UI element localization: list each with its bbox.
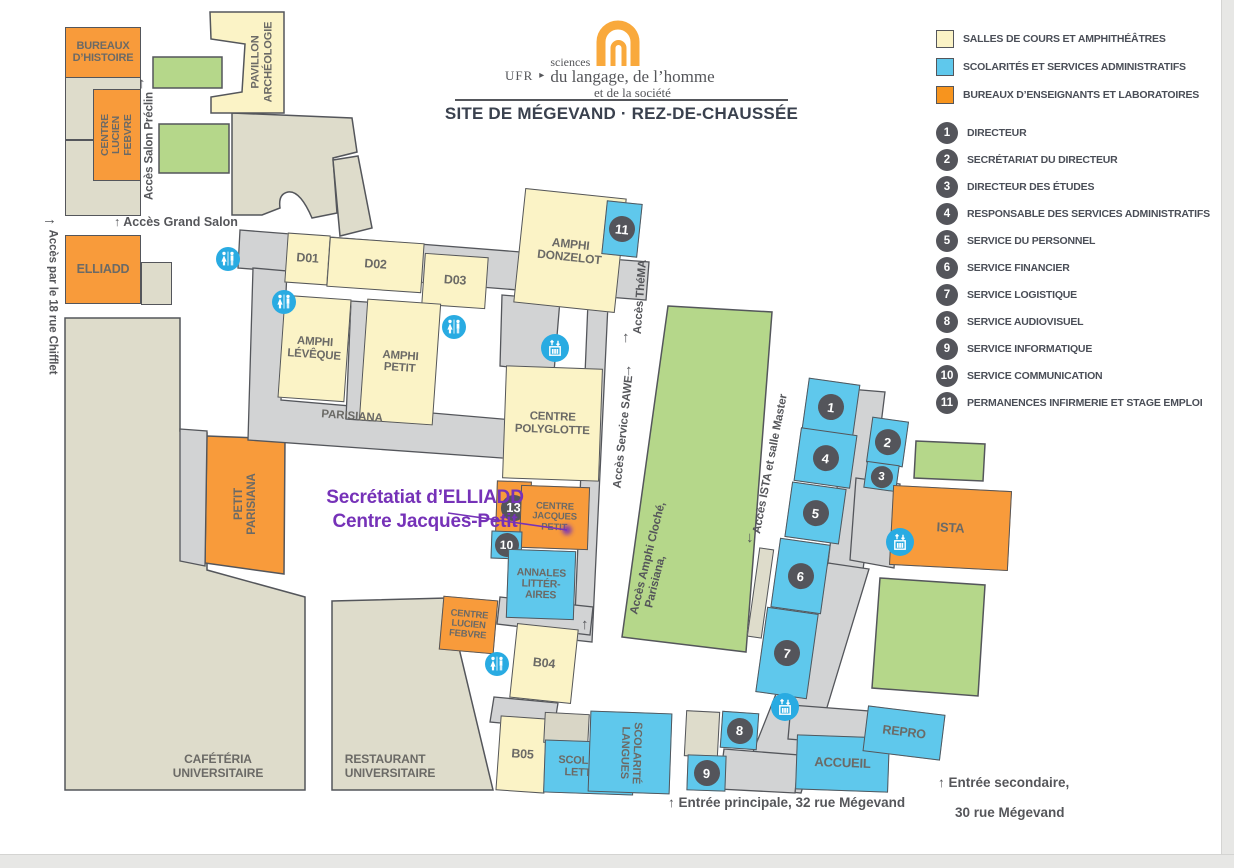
wc-icon [442,315,466,339]
directory-item-3: 3DIRECTEUR DES ÉTUDES [936,176,1094,198]
logo-line3: et de la société [550,86,714,100]
directory-item-4: 4RESPONSABLE DES SERVICES ADMINISTRATIFS [936,203,1210,225]
directory-label: SERVICE AUDIOVISUEL [967,316,1083,328]
map-badge-9: 9 [693,760,720,787]
room-secretariat-directeur: 2 [866,417,909,468]
arrow-up-icon: ↑ [622,330,630,345]
directory-label: DIRECTEUR [967,127,1026,139]
ufr-label: UFR [505,68,533,84]
ufr-arrow-icon: ▸ [539,70,544,81]
room-b04: B04 [509,623,579,704]
directory-label: DIRECTEUR DES ÉTUDES [967,181,1094,193]
room-responsable-services: 4 [794,427,858,488]
map-badge-5: 5 [801,498,830,527]
room-service-personnel: 5 [784,481,846,544]
room-service-financier: 6 [770,538,830,614]
vertical-scrollbar[interactable] [1221,0,1234,867]
building-cafeteria-label: CAFÉTÉRIA UNIVERSITAIRE [173,753,264,781]
directory-badge: 10 [936,365,958,387]
directory-item-5: 5SERVICE DU PERSONNEL [936,230,1095,252]
ufr-logo-text: UFR ▸ sciences du langage, de l’homme et… [505,56,785,100]
map-badge-4: 4 [811,443,840,472]
arrow-right-icon: → [42,212,57,227]
header-divider [455,99,788,101]
directory-item-10: 10SERVICE COMMUNICATION [936,365,1102,387]
building-entry-annex [684,710,720,758]
directory-badge: 6 [936,257,958,279]
room-d02: D02 [326,237,424,294]
legend-label: SCOLARITÉS ET SERVICES ADMINISTRATIFS [963,61,1186,73]
legend-swatch-orange [936,86,954,104]
map-badge-6: 6 [786,561,815,590]
room-centre-lucien-febvre-1: CENTRE LUCIEN FEBVRE [93,89,141,181]
room-service-informatique: 9 [686,754,726,791]
directory-badge: 11 [936,392,958,414]
room-amphi-petit: AMPHI PETIT [359,299,441,426]
room-directeur: 1 [802,378,861,437]
room-pavillon-archeologie-label: PAVILLON ARCHÉOLOGIE [249,22,274,103]
directory-badge: 9 [936,338,958,360]
room-d03: D03 [421,253,488,309]
directory-badge: 8 [936,311,958,333]
room-service-audiovisuel: 8 [720,711,759,750]
legend-item-bureaux: BUREAUX D’ENSEIGNANTS ET LABORATOIRES [936,84,1199,106]
wc-icon [485,652,509,676]
annotation-leader-line [440,500,580,542]
entrance-principale-label: ↑ Entrée principale, 32 rue Mégevand [668,795,905,810]
legend-item-cours: SALLES DE COURS ET AMPHITHÉÂTRES [936,28,1166,50]
elevator-icon [886,528,914,556]
legend-label: SALLES DE COURS ET AMPHITHÉÂTRES [963,33,1166,45]
directory-item-2: 2SECRÉTARIAT DU DIRECTEUR [936,149,1118,171]
directory-label: SECRÉTARIAT DU DIRECTEUR [967,154,1118,166]
directory-item-9: 9SERVICE INFORMATIQUE [936,338,1092,360]
room-d01: D01 [284,233,330,286]
room-centre-polyglotte: CENTRE POLYGLOTTE [502,365,603,481]
elevator-icon [771,693,799,721]
arrow-up-icon: ↑ [138,76,146,91]
map-badge-3: 3 [869,464,894,489]
legend-swatch-cream [936,30,954,48]
green-area-right-mid [872,578,985,696]
page-title: SITE DE MÉGEVAND · REZ-DE-CHAUSSÉE [440,104,803,124]
legend-swatch-blue [936,58,954,76]
room-infirmerie: 11 [601,200,642,257]
directory-label: SERVICE DU PERSONNEL [967,235,1095,247]
access-salon-preclin-label: Accès Salon Préclin [143,92,156,200]
directory-item-6: 6SERVICE FINANCIER [936,257,1070,279]
room-elliadd: ELLIADD [65,235,141,304]
room-bureaux-histoire: BUREAUX D’HISTOIRE [65,27,141,78]
directory-item-7: 7SERVICE LOGISTIQUE [936,284,1077,306]
directory-label: SERVICE COMMUNICATION [967,370,1102,382]
map-badge-7: 7 [772,638,801,667]
room-scolarite-langues: SCOLARITÉ LANGUES [588,711,673,795]
building-divider [65,139,94,141]
arrow-up-icon: ↑ [581,617,589,632]
directory-label: PERMANENCES INFIRMERIE ET STAGE EMPLOI [967,397,1202,409]
green-area-top-a [153,57,222,88]
directory-label: SERVICE FINANCIER [967,262,1070,274]
horizontal-scrollbar[interactable] [0,854,1234,868]
wc-icon [216,247,240,271]
wc-icon [272,290,296,314]
map-badge-11: 11 [608,215,637,244]
corridor-petit-parisiana [180,429,207,566]
room-b05: B05 [495,715,549,793]
directory-item-8: 8SERVICE AUDIOVISUEL [936,311,1083,333]
map-badge-2: 2 [873,427,902,456]
green-area-top-b [159,124,229,173]
building-restaurant-label: RESTAURANT UNIVERSITAIRE [345,753,436,781]
green-area-right-top [914,441,985,481]
directory-badge: 4 [936,203,958,225]
map-badge-1: 1 [816,392,845,421]
directory-label: RESPONSABLE DES SERVICES ADMINISTRATIFS [967,208,1210,220]
map-badge-8: 8 [726,717,754,745]
directory-badge: 1 [936,122,958,144]
logo-line2: du langage, de l’homme [550,68,714,86]
directory-badge: 2 [936,149,958,171]
directory-item-11: 11PERMANENCES INFIRMERIE ET STAGE EMPLOI [936,392,1202,414]
building-elliadd-annex [141,262,172,305]
access-chifflet-label: Accès par le 18 rue Chifflet [45,230,58,375]
directory-item-1: 1DIRECTEUR [936,122,1026,144]
room-centre-lucien-febvre-2: CENTRE LUCIEN FEBVRE [439,596,498,655]
directory-label: SERVICE LOGISTIQUE [967,289,1077,301]
directory-label: SERVICE INFORMATIQUE [967,343,1092,355]
directory-badge: 5 [936,230,958,252]
elevator-icon [541,334,569,362]
access-grand-salon-label: ↑ Accès Grand Salon [114,215,238,229]
corridor-accueil-bottom [719,749,799,793]
legend-label: BUREAUX D’ENSEIGNANTS ET LABORATOIRES [963,89,1199,101]
room-repro: REPRO [862,705,945,760]
directory-badge: 7 [936,284,958,306]
room-petit-parisiana-label: PETIT PARISIANA [233,473,259,535]
legend-item-scolarites: SCOLARITÉS ET SERVICES ADMINISTRATIFS [936,56,1186,78]
entrance-secondaire-label: ↑ Entrée secondaire, 30 rue Mégevand [938,760,1069,835]
building-grand-salon-tail [333,156,372,236]
directory-badge: 3 [936,176,958,198]
room-annales-litteraires: ANNALES LITTÉR- AIRES [506,549,576,620]
